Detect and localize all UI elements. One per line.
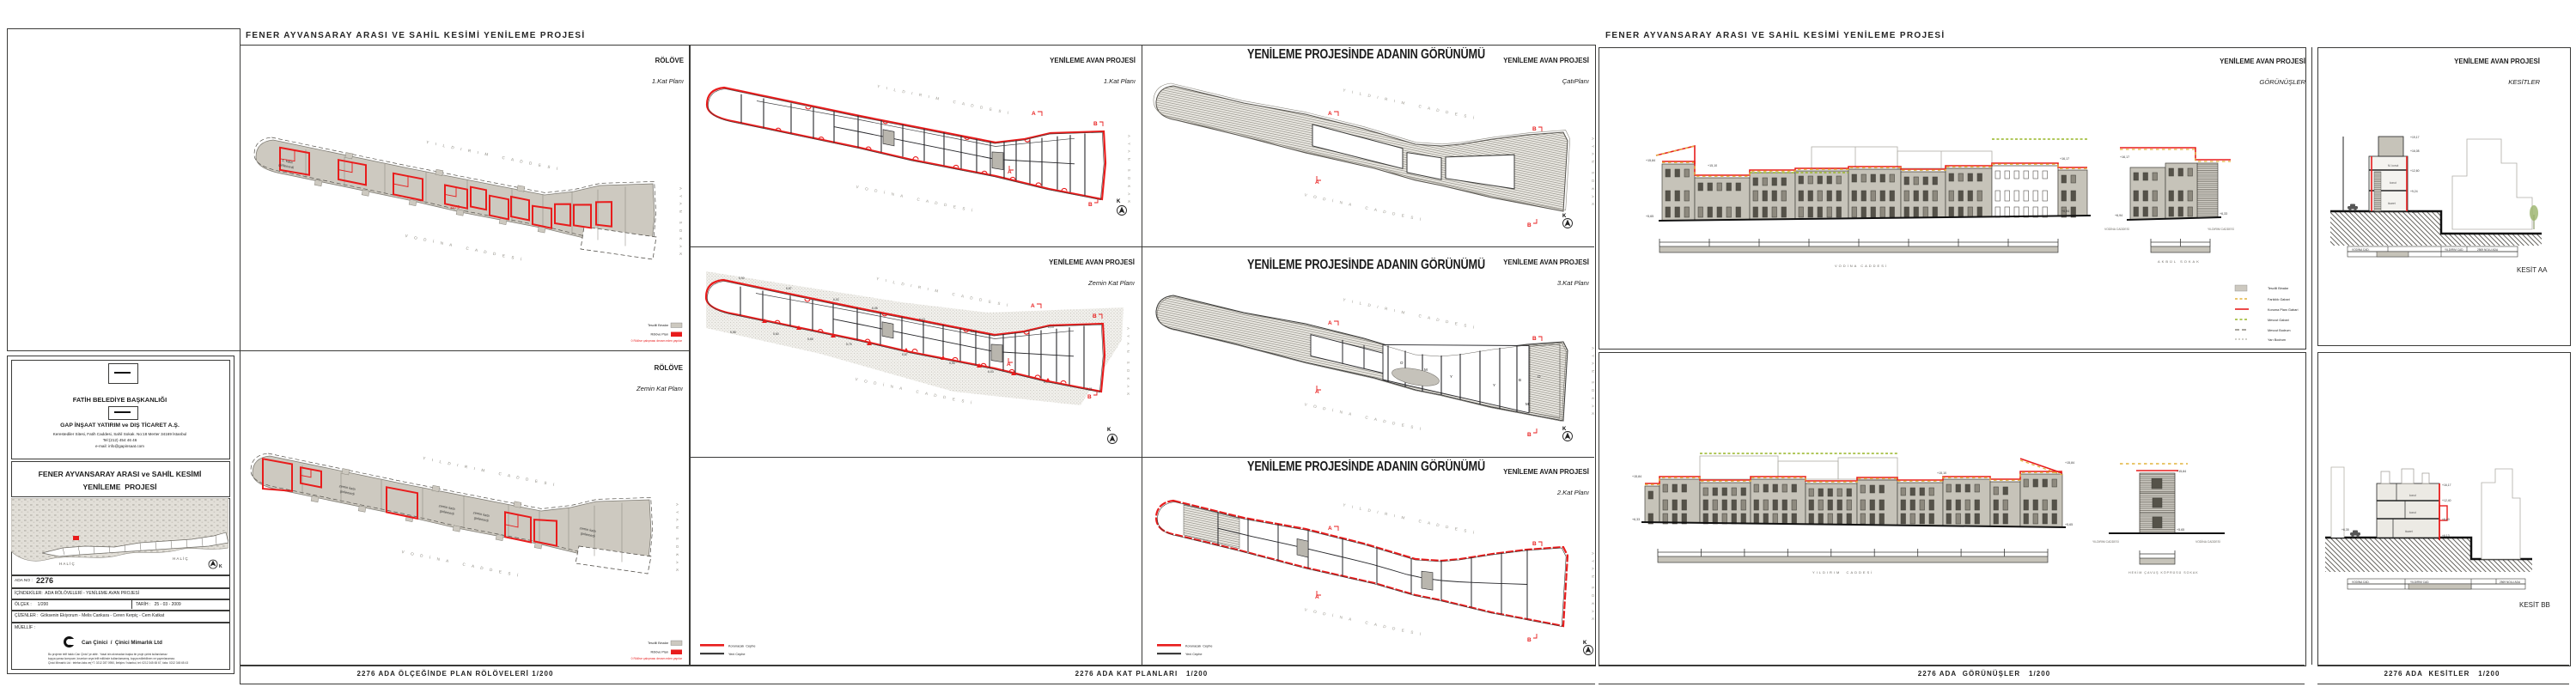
svg-text:K: K: [1562, 427, 1567, 432]
svg-text:B: B: [1093, 121, 1098, 127]
svg-text:Korunacak Cephe: Korunacak Cephe: [1185, 644, 1212, 647]
svg-text:6,13: 6,13: [1048, 325, 1054, 329]
svg-text:5,87: 5,87: [786, 287, 792, 290]
svg-text:Y I L D I R I M C A D D E S: Y I L D I R I M C A D D E S İ: [1343, 502, 1477, 535]
svg-text:Y: Y: [1493, 383, 1495, 387]
svg-text:+12,40: +12,40: [2442, 499, 2451, 502]
svg-text:+19,17: +19,17: [2410, 136, 2420, 139]
svg-text:+6,94: +6,94: [2115, 214, 2122, 217]
svg-text:K: K: [1107, 428, 1111, 433]
svg-text:M: M: [1424, 368, 1428, 372]
svg-text:Tescilli Binalar: Tescilli Binalar: [648, 641, 669, 645]
svg-text:A Y A N S O K A K: A Y A N S O K A K: [1591, 137, 1595, 208]
svg-text:A: A: [1032, 111, 1036, 117]
svg-text:+5,97: +5,97: [2410, 210, 2418, 214]
svg-text:6,02: 6,02: [833, 298, 839, 301]
svg-text:Yeni Cephe: Yeni Cephe: [1185, 653, 1203, 656]
svg-text:Rölöve Plan: Rölöve Plan: [651, 651, 668, 654]
svg-text:K: K: [1583, 641, 1587, 646]
svg-text:A Y A N S O K A K: A Y A N S O K A K: [1591, 347, 1595, 417]
svg-text:A: A: [1328, 111, 1332, 117]
svg-text:A Y A N S O K A K: A Y A N S O K A K: [1591, 552, 1595, 623]
svg-text:VODİNA CAD.: VODİNA CAD.: [2352, 580, 2370, 584]
svg-text:O: O: [1538, 374, 1541, 379]
svg-text:+6,13: +6,13: [2442, 534, 2450, 538]
svg-text:5,58: 5,58: [730, 331, 736, 334]
svg-text:6,21: 6,21: [1087, 387, 1093, 391]
svg-text:VODİNA CAD.: VODİNA CAD.: [2352, 247, 2370, 252]
svg-text:Y I L D I R I M C A D D E S: Y I L D I R I M C A D D E S İ: [1343, 87, 1477, 120]
svg-text:+15,84: +15,84: [2177, 470, 2186, 473]
svg-text:konut: konut: [2409, 494, 2416, 497]
svg-text:+6,33: +6,33: [1632, 518, 1640, 521]
svg-text:YILDIRIM CAD.: YILDIRIM CAD.: [2445, 248, 2463, 252]
svg-text:5,87: 5,87: [902, 353, 908, 356]
svg-text:M. konut: M. konut: [2388, 164, 2398, 167]
svg-text:+8,40: +8,40: [2442, 518, 2450, 521]
svg-text:YILDIRIM CAD.: YILDIRIM CAD.: [2410, 581, 2429, 584]
svg-text:YILDIRIM CADDESİ: YILDIRIM CADDESİ: [2092, 539, 2119, 544]
svg-text:V O D İ N A C A D D E S İ: V O D İ N A C A D D E S İ: [856, 184, 976, 213]
svg-text:+5,65: +5,65: [2065, 523, 2073, 526]
svg-text:K: K: [1562, 214, 1567, 219]
svg-text:ticaret: ticaret: [2405, 530, 2413, 533]
svg-text:M: M: [1526, 402, 1529, 406]
svg-text:V O D İ N A C A D D E S İ: V O D İ N A C A D D E S İ: [405, 233, 525, 262]
svg-text:2569 NOLU ADA: 2569 NOLU ADA: [2477, 248, 2499, 252]
svg-text:Mevcut Bodrum: Mevcut Bodrum: [2268, 329, 2291, 332]
svg-text:A: A: [1031, 303, 1035, 309]
svg-text:Rölöve Plan: Rölöve Plan: [651, 333, 668, 337]
svg-text:A Y A N S O K A K: A Y A N S O K A K: [679, 187, 683, 258]
svg-text:6,13: 6,13: [971, 330, 977, 333]
svg-text:+15,10: +15,10: [1708, 164, 1717, 167]
svg-text:2569 NOLU ADA: 2569 NOLU ADA: [2500, 581, 2521, 584]
svg-text:Mevcut Gabari: Mevcut Gabari: [2268, 319, 2289, 322]
svg-text:konut: konut: [2409, 511, 2416, 514]
svg-text:+5,65: +5,65: [2177, 528, 2184, 532]
svg-text:2276: 2276: [450, 205, 460, 210]
svg-text:+16,17: +16,17: [2120, 155, 2129, 159]
svg-text:V O D İ N A C A D D E S İ: V O D İ N A C A D D E S İ: [1304, 606, 1424, 636]
svg-text:V O D İ N A C A D D E S İ: V O D İ N A C A D D E S İ: [1304, 192, 1424, 222]
svg-text:Y: Y: [1450, 374, 1452, 379]
svg-text:+6,33: +6,33: [2220, 212, 2227, 216]
svg-text:KESİT AA: KESİT AA: [2517, 266, 2548, 274]
svg-text:5,68: 5,68: [807, 337, 813, 341]
svg-text:ticaret: ticaret: [2388, 202, 2396, 205]
svg-text:+15,84: +15,84: [1632, 475, 1641, 478]
svg-text:O: O: [1400, 361, 1404, 365]
svg-text:B: B: [1527, 432, 1532, 438]
svg-text:5,90: 5,90: [739, 277, 745, 280]
svg-text:V O D İ N A C A D D E S İ: V O D İ N A C A D D E S İ: [1304, 401, 1424, 431]
svg-text:VODİNA CADDESİ: VODİNA CADDESİ: [1835, 264, 1888, 268]
svg-text:+16,17: +16,17: [2060, 157, 2069, 161]
svg-text:B: B: [1088, 202, 1093, 208]
svg-text:B: B: [1087, 394, 1092, 400]
svg-text:6,08: 6,08: [872, 307, 878, 310]
svg-text:0 Rölöve çalışması devam eden: 0 Rölöve çalışması devam eden yapılar: [631, 657, 683, 660]
svg-text:+6,94: +6,94: [2061, 210, 2069, 213]
svg-text:konut: konut: [2390, 181, 2396, 185]
svg-text:HEKİM ÇAVUŞ KÖPRÜSÜ SOKAK: HEKİM ÇAVUŞ KÖPRÜSÜ SOKAK: [2128, 570, 2199, 575]
svg-text:YILDIRIM CADDESİ: YILDIRIM CADDESİ: [2208, 227, 2234, 231]
svg-text:+16,17: +16,17: [2442, 483, 2451, 487]
svg-text:B: B: [1532, 541, 1537, 547]
svg-text:5,75: 5,75: [846, 343, 852, 346]
svg-text:+15,84: +15,84: [2065, 461, 2074, 465]
svg-text:YILDIRIM CADDESİ: YILDIRIM CADDESİ: [1812, 570, 1873, 575]
svg-text:A Y A N S O K A K: A Y A N S O K A K: [675, 503, 679, 574]
svg-text:0 Rölöve çalışması devam eden: 0 Rölöve çalışması devam eden yapılar: [631, 339, 683, 343]
svg-text:Farklılık Gabari: Farklılık Gabari: [2268, 298, 2290, 301]
svg-text:+9,24: +9,24: [2410, 190, 2418, 193]
svg-text:+12,60: +12,60: [2410, 169, 2420, 173]
svg-text:+15,84: +15,84: [1646, 159, 1655, 162]
svg-text:B: B: [1532, 126, 1537, 132]
svg-text:B: B: [1527, 637, 1532, 643]
svg-text:A Y A N S O K A K: A Y A N S O K A K: [1127, 135, 1131, 205]
svg-text:VODİNA CADDESİ: VODİNA CADDESİ: [2104, 227, 2129, 231]
svg-text:B: B: [1527, 222, 1532, 228]
svg-text:Y I L D I R I M C A D D E S: Y I L D I R I M C A D D E S İ: [877, 83, 1012, 116]
svg-text:Tescilli Binalar: Tescilli Binalar: [648, 324, 669, 327]
svg-text:VODİNA CADDESİ: VODİNA CADDESİ: [2195, 539, 2220, 544]
svg-text:B: B: [1532, 336, 1537, 342]
svg-text:+5,65: +5,65: [1646, 215, 1653, 218]
svg-text:6,03: 6,03: [988, 370, 994, 374]
svg-text:KESİT BB: KESİT BB: [2519, 601, 2550, 609]
svg-text:A: A: [1328, 320, 1332, 326]
svg-text:6,13: 6,13: [919, 318, 925, 321]
svg-text:K: K: [1117, 199, 1121, 204]
svg-text:Tescilli Binalar: Tescilli Binalar: [2268, 287, 2289, 290]
svg-text:A: A: [1328, 526, 1332, 532]
svg-text:B: B: [1093, 313, 1097, 319]
svg-text:V O D İ N A C A D D E S İ: V O D İ N A C A D D E S İ: [401, 549, 521, 578]
svg-text:+6,35: +6,35: [2342, 528, 2349, 532]
svg-text:Yeni Cephe: Yeni Cephe: [728, 653, 746, 656]
svg-text:Korunacak Cephe: Korunacak Cephe: [728, 644, 755, 647]
svg-text:+16,08: +16,08: [2410, 149, 2420, 153]
svg-text:Yarı Bodrum: Yarı Bodrum: [2268, 338, 2286, 342]
svg-text:5,95: 5,95: [949, 362, 955, 365]
svg-text:Y I L D I R I M C A D D E S: Y I L D I R I M C A D D E S İ: [1343, 296, 1477, 330]
svg-text:B: B: [1519, 378, 1521, 382]
svg-text:AKBÜL SOKAK: AKBÜL SOKAK: [2158, 259, 2201, 264]
svg-text:+15,10: +15,10: [1937, 471, 1946, 475]
svg-text:A Y A N S O K A K: A Y A N S O K A K: [1126, 327, 1130, 398]
svg-text:Y I L D I R I M C A D D E S: Y I L D I R I M C A D D E S İ: [426, 139, 561, 172]
svg-text:5,60: 5,60: [773, 332, 779, 336]
svg-text:Y I L D I R I M C A D D E S: Y I L D I R I M C A D D E S İ: [423, 455, 557, 488]
svg-text:Koruma Planı Gabari: Koruma Planı Gabari: [2268, 308, 2299, 312]
